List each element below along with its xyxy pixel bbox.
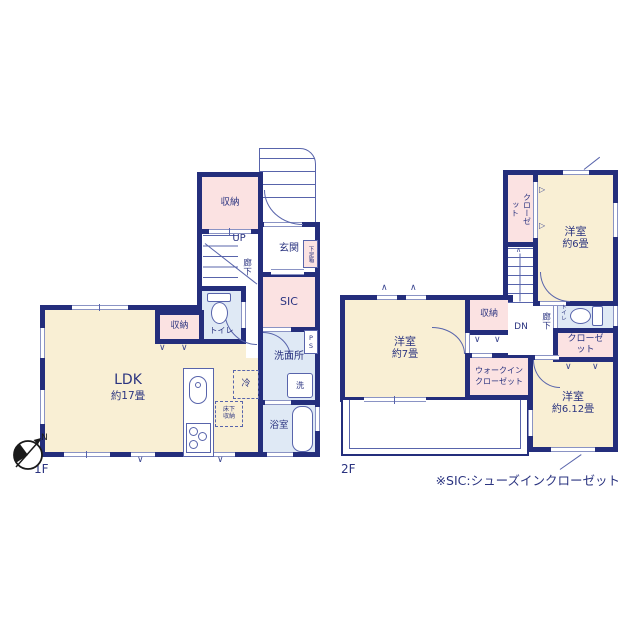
room6-size: 約6畳 [562,239,588,252]
room-storage-2f: 収納 [465,295,513,335]
room7-size: 約7畳 [392,349,418,362]
window [377,295,397,300]
room612-size: 約6.12畳 [552,404,594,417]
window [613,306,618,326]
floorplan-canvas: 収納 玄関 SIC 収納 UP 廊下 下足箱 [0,0,640,640]
window [613,203,618,237]
window [563,170,589,175]
closet-right: クローゼット [553,328,618,362]
room612-name: 洋室 [562,390,584,404]
balcony-door [364,397,426,402]
door-opening [553,306,558,328]
window-shutter-line [584,157,600,170]
walk-in-closet-label: ウォークインクローゼット [473,366,525,387]
hanger-mark-icon: ▷ [539,186,545,194]
closet-right-label: クローゼット [565,334,607,356]
corridor-2f-label: 廊下 [540,312,551,330]
closet-opening [533,182,538,238]
window [406,295,426,300]
hanger-mark-icon: ∨ [592,363,599,372]
window-shutter-line [560,454,582,470]
toilet-tank-2f [592,306,603,326]
staircase-2f-treads [508,248,533,304]
window [551,447,595,452]
toilet-bowl-2f [570,308,591,324]
toilet-2f-label: トイレ [559,304,567,321]
stair-arrow-icon: ∧ [516,247,521,254]
hanger-mark-icon: ∨ [565,363,572,372]
balcony-rail [349,400,521,449]
closet-upper-label: クローゼット [509,193,533,225]
room7-name: 洋室 [394,335,416,349]
walk-in-closet: ウォークインクローゼット [465,353,533,400]
floor-2f-plan: 洋室 約7畳 洋室 約6畳 洋室 約6.12畳 クローゼット 収納 クローゼット… [0,0,640,640]
window-tick [394,396,395,404]
door-opening [472,353,492,358]
storage-2f-label: 収納 [480,309,498,320]
stairs-dn-label: DN [509,322,533,333]
vent-mark-icon: ∧ [410,284,417,293]
staircase-2f-direction-line [520,254,521,302]
sic-note: ※SIC:シューズインクローゼット [425,473,620,489]
door-opening [465,333,470,353]
hanger-mark-icon: ∨ [494,336,501,345]
hanger-mark-icon: ▷ [539,222,545,230]
floor-2f-label: 2F [341,462,367,477]
vent-mark-icon: ∧ [381,284,388,293]
hall-2f-floor [470,335,553,353]
hanger-mark-icon: ∨ [474,336,481,345]
room6-name: 洋室 [565,225,587,239]
window [528,410,533,436]
